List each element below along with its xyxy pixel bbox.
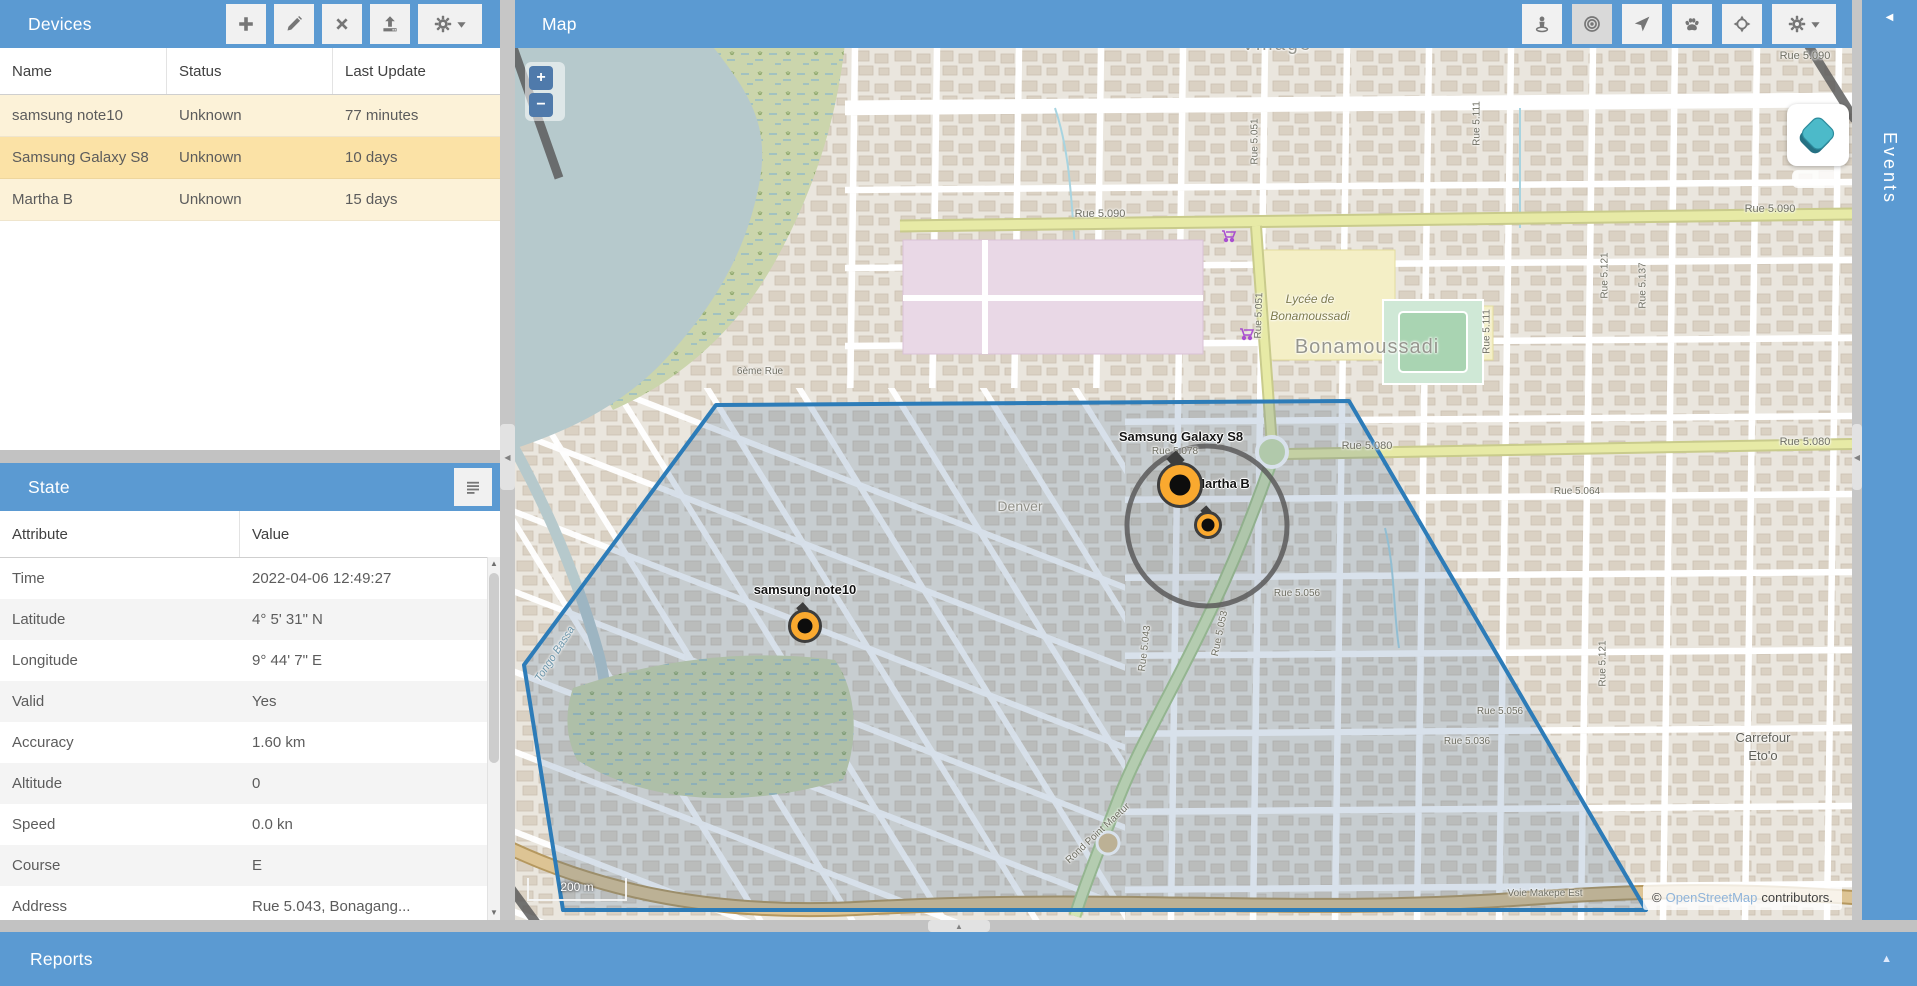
devices-panel-title: Devices xyxy=(28,14,92,35)
events-title: Events xyxy=(1879,132,1900,205)
device-row[interactable]: samsung note10 Unknown 77 minutes xyxy=(0,95,500,137)
devices-panel-header: Devices xyxy=(0,0,500,48)
column-header-status[interactable]: Status xyxy=(167,48,333,94)
reports-title: Reports xyxy=(30,949,93,970)
edit-icon xyxy=(285,15,303,33)
upload-icon xyxy=(381,15,399,33)
map-view[interactable]: VillageRue 5.090Rue 5.090Rue 5.090Rue 5.… xyxy=(515,48,1852,920)
device-name: samsung note10 xyxy=(0,95,167,136)
device-marker-label: samsung note10 xyxy=(754,582,857,597)
reports-splitter[interactable]: ▲ xyxy=(0,920,1917,932)
state-toolbar xyxy=(454,468,500,506)
collapse-events-tab[interactable]: ◀ xyxy=(1852,424,1862,490)
map-panel-header: Map xyxy=(515,0,1852,48)
column-header-name[interactable]: Name xyxy=(0,48,167,94)
list-icon xyxy=(464,478,482,496)
left-map-splitter[interactable]: ◀ xyxy=(500,0,515,920)
follow-arrow-icon xyxy=(1633,15,1651,33)
state-value: E xyxy=(240,845,500,886)
device-status: Unknown xyxy=(167,95,333,136)
devices-panel: Devices Name Status Last Update samsung … xyxy=(0,0,500,450)
remove-device-button[interactable] xyxy=(322,4,362,44)
state-value: 2022-04-06 12:49:27 xyxy=(240,558,500,599)
column-header-last-update[interactable]: Last Update xyxy=(333,48,500,94)
locate-button[interactable] xyxy=(1722,4,1762,44)
marker-center-dot xyxy=(798,619,813,634)
arrow-left-icon[interactable]: ◀ xyxy=(1886,12,1894,23)
map-mini-control xyxy=(1792,170,1838,188)
marker-center-dot xyxy=(1202,519,1215,532)
traccar-app: Devices Name Status Last Update samsung … xyxy=(0,0,1917,986)
reports-bar[interactable]: Reports ▲ xyxy=(0,932,1917,986)
state-value: Rue 5.043, Bonagang... xyxy=(240,886,500,920)
device-marker[interactable] xyxy=(1194,511,1222,539)
scrollbar-thumb[interactable] xyxy=(489,573,499,763)
state-row[interactable]: Course E xyxy=(0,845,500,886)
map-panel: Map xyxy=(515,0,1852,920)
arrow-left-icon: ◀ xyxy=(504,453,510,462)
state-panel: State Attribute Value Time 2022-04-06 12… xyxy=(0,463,500,920)
settings-icon xyxy=(1788,15,1806,33)
device-name: Martha B xyxy=(0,179,167,220)
device-marker-label: Samsung Galaxy S8 xyxy=(1119,429,1243,444)
map-panel-title: Map xyxy=(542,14,577,35)
state-attribute: Accuracy xyxy=(0,722,240,763)
edit-device-button[interactable] xyxy=(274,4,314,44)
map-scale-bar: 200 m xyxy=(527,878,627,901)
collapse-left-panel-tab[interactable]: ◀ xyxy=(500,424,515,490)
state-attribute: Course xyxy=(0,845,240,886)
expand-reports-tab[interactable]: ▲ xyxy=(928,920,990,932)
zoom-in-button[interactable]: + xyxy=(529,66,553,90)
animal-tracking-button[interactable] xyxy=(1672,4,1712,44)
device-row-selected[interactable]: Samsung Galaxy S8 Unknown 10 days xyxy=(0,137,500,179)
events-bar[interactable]: ◀ Events xyxy=(1862,0,1917,920)
attribution-suffix: contributors. xyxy=(1761,890,1833,905)
zoom-out-button[interactable]: − xyxy=(529,93,553,117)
scroll-down-arrow-icon[interactable]: ▼ xyxy=(488,906,500,920)
state-value: Yes xyxy=(240,681,500,722)
upload-button[interactable] xyxy=(370,4,410,44)
devices-settings-dropdown[interactable] xyxy=(418,4,482,44)
state-attribute: Valid xyxy=(0,681,240,722)
arrow-up-icon[interactable]: ▲ xyxy=(1881,953,1892,965)
caret-down-icon xyxy=(456,19,467,30)
follow-button[interactable] xyxy=(1622,4,1662,44)
state-attribute: Address xyxy=(0,886,240,920)
caret-down-icon xyxy=(1810,19,1821,30)
devices-state-splitter[interactable] xyxy=(0,450,500,463)
map-toolbar xyxy=(1522,4,1852,44)
devices-grid-header: Name Status Last Update xyxy=(0,48,500,95)
state-attribute: Time xyxy=(0,558,240,599)
state-row[interactable]: Time 2022-04-06 12:49:27 xyxy=(0,558,500,599)
layer-switcher-button[interactable] xyxy=(1787,104,1849,166)
state-value: 0 xyxy=(240,763,500,804)
device-status: Unknown xyxy=(167,137,333,178)
device-last-update: 15 days xyxy=(333,179,500,220)
settings-icon xyxy=(434,15,452,33)
state-row[interactable]: Accuracy 1.60 km xyxy=(0,722,500,763)
state-grid-header: Attribute Value xyxy=(0,511,500,558)
arrow-up-icon: ▲ xyxy=(955,922,963,931)
state-value: 1.60 km xyxy=(240,722,500,763)
map-attribution: © OpenStreetMap contributors. xyxy=(1643,884,1842,910)
state-panel-header: State xyxy=(0,463,500,511)
device-marker[interactable] xyxy=(788,609,822,643)
state-row[interactable]: Address Rue 5.043, Bonagang... xyxy=(0,886,500,920)
state-list-button[interactable] xyxy=(454,468,492,506)
device-row[interactable]: Martha B Unknown 15 days xyxy=(0,179,500,221)
device-marker[interactable] xyxy=(1157,462,1203,508)
paw-icon xyxy=(1683,15,1701,33)
state-attribute: Latitude xyxy=(0,599,240,640)
street-view-icon xyxy=(1533,15,1551,33)
copyright-symbol: © xyxy=(1652,890,1662,905)
street-view-button[interactable] xyxy=(1522,4,1562,44)
add-icon xyxy=(237,15,255,33)
layers-icon xyxy=(1796,113,1840,157)
arrow-left-icon: ◀ xyxy=(1854,453,1860,462)
state-attribute: Altitude xyxy=(0,763,240,804)
state-row[interactable]: Valid Yes xyxy=(0,681,500,722)
attribution-link[interactable]: OpenStreetMap xyxy=(1666,890,1758,905)
map-events-splitter[interactable]: ◀ xyxy=(1852,0,1862,920)
target-icon xyxy=(1733,15,1751,33)
state-row[interactable]: Latitude 4° 5' 31" N xyxy=(0,599,500,640)
device-status: Unknown xyxy=(167,179,333,220)
markers-layer: samsung note10Martha BSamsung Galaxy S8 xyxy=(515,48,1852,920)
device-name: Samsung Galaxy S8 xyxy=(0,137,167,178)
map-settings-dropdown[interactable] xyxy=(1772,4,1836,44)
state-panel-title: State xyxy=(28,477,70,498)
state-value: 0.0 kn xyxy=(240,804,500,845)
state-row[interactable]: Altitude 0 xyxy=(0,763,500,804)
remove-icon xyxy=(333,15,351,33)
devices-toolbar xyxy=(226,4,500,44)
add-device-button[interactable] xyxy=(226,4,266,44)
column-header-attribute[interactable]: Attribute xyxy=(0,511,240,557)
geofence-circles-icon xyxy=(1583,15,1601,33)
state-grid-body: Time 2022-04-06 12:49:27 Latitude 4° 5' … xyxy=(0,558,500,920)
column-header-value[interactable]: Value xyxy=(240,511,500,557)
state-value: 4° 5' 31" N xyxy=(240,599,500,640)
zoom-control: + − xyxy=(525,62,565,121)
scroll-up-arrow-icon[interactable]: ▲ xyxy=(488,557,500,571)
devices-grid-body: samsung note10 Unknown 77 minutes Samsun… xyxy=(0,95,500,221)
marker-center-dot xyxy=(1170,475,1191,496)
state-value: 9° 44' 7" E xyxy=(240,640,500,681)
state-row[interactable]: Speed 0.0 kn xyxy=(0,804,500,845)
device-last-update: 10 days xyxy=(333,137,500,178)
state-attribute: Speed xyxy=(0,804,240,845)
state-row[interactable]: Longitude 9° 44' 7" E xyxy=(0,640,500,681)
state-attribute: Longitude xyxy=(0,640,240,681)
device-last-update: 77 minutes xyxy=(333,95,500,136)
state-scrollbar[interactable]: ▲ ▼ xyxy=(487,557,500,920)
geofence-circles-button[interactable] xyxy=(1572,4,1612,44)
